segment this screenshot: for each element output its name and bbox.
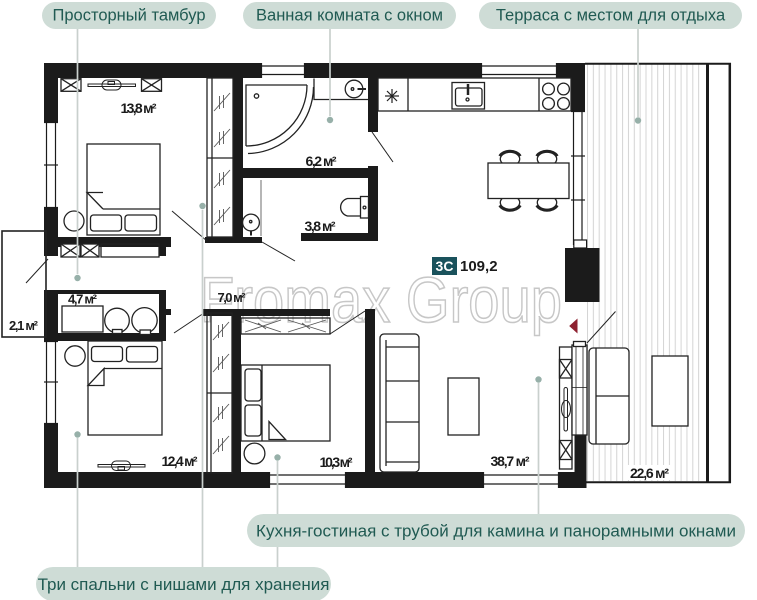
svg-text:Три спальни с нишами для хране: Три спальни с нишами для хранения [38, 575, 330, 594]
svg-text:Просторный тамбур: Просторный тамбур [53, 7, 206, 25]
svg-text:10,3 м²: 10,3 м² [320, 454, 353, 470]
svg-text:109,2: 109,2 [460, 258, 498, 275]
svg-text:3,8 м²: 3,8 м² [305, 218, 336, 234]
svg-text:6,2 м²: 6,2 м² [306, 153, 337, 169]
svg-text:13,8 м²: 13,8 м² [121, 100, 157, 116]
svg-text:12,4 м²: 12,4 м² [162, 453, 198, 469]
svg-text:38,7 м²: 38,7 м² [491, 453, 530, 469]
svg-text:Ванная комната с окном: Ванная комната с окном [256, 7, 443, 25]
svg-text:Fromax Group: Fromax Group [200, 264, 562, 336]
svg-text:3С: 3С [436, 258, 454, 274]
svg-text:22,6 м²: 22,6 м² [630, 465, 669, 481]
svg-text:7,0 м²: 7,0 м² [218, 290, 247, 305]
svg-text:2,1 м²: 2,1 м² [9, 318, 39, 333]
svg-text:Терраса с местом для отдыха: Терраса с местом для отдыха [496, 7, 726, 25]
svg-text:4,7 м²: 4,7 м² [68, 292, 98, 307]
svg-text:Кухня-гостиная с трубой для ка: Кухня-гостиная с трубой для камина и пан… [256, 522, 736, 541]
